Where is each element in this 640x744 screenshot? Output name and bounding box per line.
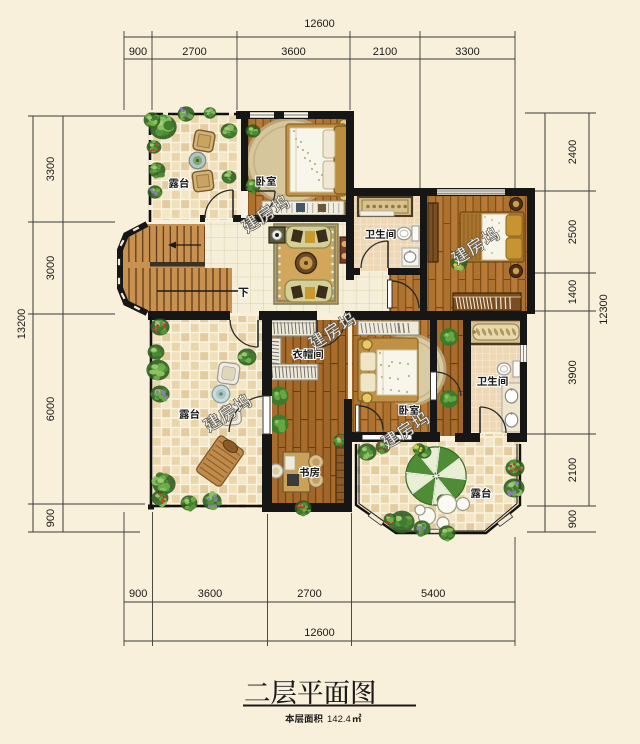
svg-text:900: 900 bbox=[129, 588, 147, 600]
svg-text:900: 900 bbox=[129, 46, 147, 58]
svg-text:12600: 12600 bbox=[304, 627, 335, 639]
svg-text:5400: 5400 bbox=[421, 588, 445, 600]
svg-text:2100: 2100 bbox=[373, 46, 397, 58]
svg-text:2100: 2100 bbox=[567, 458, 579, 482]
svg-text:3600: 3600 bbox=[281, 46, 305, 58]
svg-text:3300: 3300 bbox=[45, 157, 57, 181]
svg-text:2500: 2500 bbox=[567, 220, 579, 244]
svg-text:2700: 2700 bbox=[182, 46, 206, 58]
svg-text:1400: 1400 bbox=[567, 280, 579, 304]
svg-text:6000: 6000 bbox=[45, 397, 57, 421]
svg-text:900: 900 bbox=[45, 509, 57, 527]
svg-text:2400: 2400 bbox=[567, 140, 579, 164]
svg-text:3300: 3300 bbox=[455, 46, 479, 58]
svg-text:142.4: 142.4 bbox=[327, 714, 351, 725]
svg-text:2700: 2700 bbox=[297, 588, 321, 600]
svg-text:900: 900 bbox=[567, 510, 579, 528]
svg-text:13200: 13200 bbox=[16, 309, 28, 340]
svg-text:3600: 3600 bbox=[198, 588, 222, 600]
svg-text:3900: 3900 bbox=[567, 360, 579, 384]
svg-text:3000: 3000 bbox=[45, 256, 57, 280]
svg-text:12600: 12600 bbox=[304, 18, 335, 30]
svg-text:12300: 12300 bbox=[598, 294, 610, 325]
